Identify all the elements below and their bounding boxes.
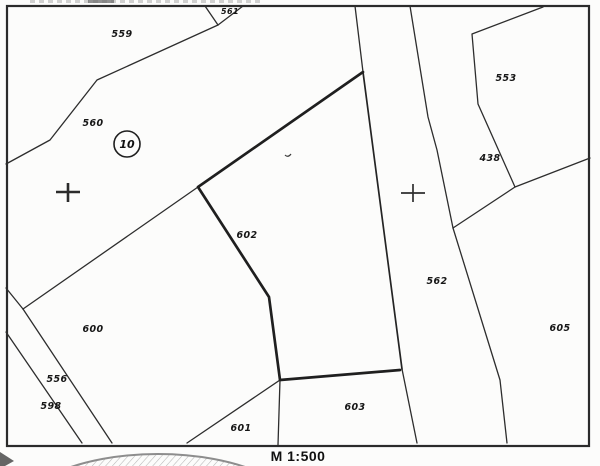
- parcel-label-598: 598: [40, 401, 61, 412]
- map-frame: [7, 6, 589, 446]
- parcel-label-438: 438: [478, 153, 500, 164]
- parcel-label-556: 556: [46, 374, 67, 385]
- map-canvas: 10 559 561 560 600 602 556 598 601 603 5…: [0, 0, 600, 466]
- parcel-label-561: 561: [221, 7, 239, 16]
- parcel-label-559: 559: [111, 29, 132, 40]
- block-number-label: 10: [119, 138, 135, 151]
- parcel-label-605: 605: [549, 323, 570, 334]
- parcel-label-560: 560: [82, 118, 103, 129]
- round-stamp-icon: [0, 452, 308, 466]
- map-scale-label: M 1:500: [271, 448, 326, 464]
- parcel-label-602: 602: [236, 230, 257, 241]
- parcel-label-601: 601: [230, 423, 251, 434]
- parcel-label-562: 562: [426, 276, 447, 287]
- cadastral-map-scan: 10 559 561 560 600 602 556 598 601 603 5…: [0, 0, 600, 466]
- parcel-label-603: 603: [344, 402, 365, 413]
- parcel-label-600: 600: [82, 324, 103, 335]
- parcel-label-553: 553: [495, 73, 516, 84]
